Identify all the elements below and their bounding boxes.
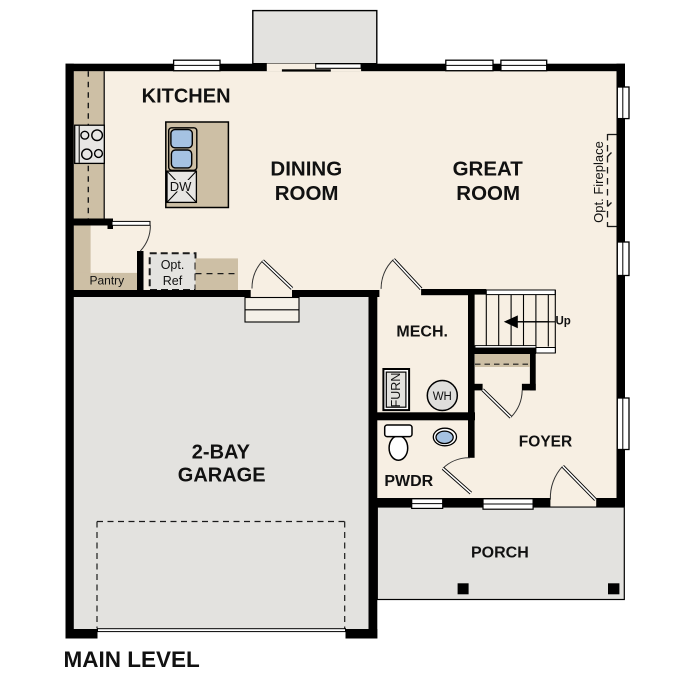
svg-text:ROOM: ROOM	[275, 182, 339, 205]
svg-text:PWDR: PWDR	[384, 473, 433, 490]
svg-text:WH: WH	[433, 391, 452, 403]
svg-text:ROOM: ROOM	[456, 182, 520, 205]
svg-text:GREAT: GREAT	[453, 157, 524, 180]
svg-text:DINING: DINING	[270, 157, 342, 180]
svg-text:Pantry: Pantry	[90, 273, 125, 287]
svg-text:GARAGE: GARAGE	[178, 465, 266, 487]
svg-text:MAIN LEVEL: MAIN LEVEL	[64, 647, 201, 672]
svg-text:FURN: FURN	[389, 373, 403, 408]
svg-text:Ref: Ref	[163, 274, 183, 288]
svg-text:PORCH: PORCH	[471, 544, 529, 561]
svg-text:FOYER: FOYER	[519, 433, 572, 450]
svg-text:MECH.: MECH.	[396, 324, 448, 341]
svg-text:KITCHEN: KITCHEN	[142, 85, 231, 107]
svg-text:Opt.: Opt.	[161, 258, 185, 272]
svg-text:Up: Up	[556, 316, 571, 328]
svg-text:Opt. Fireplace: Opt. Fireplace	[591, 141, 606, 223]
svg-text:2-BAY: 2-BAY	[192, 441, 251, 463]
svg-text:DW: DW	[170, 179, 192, 194]
